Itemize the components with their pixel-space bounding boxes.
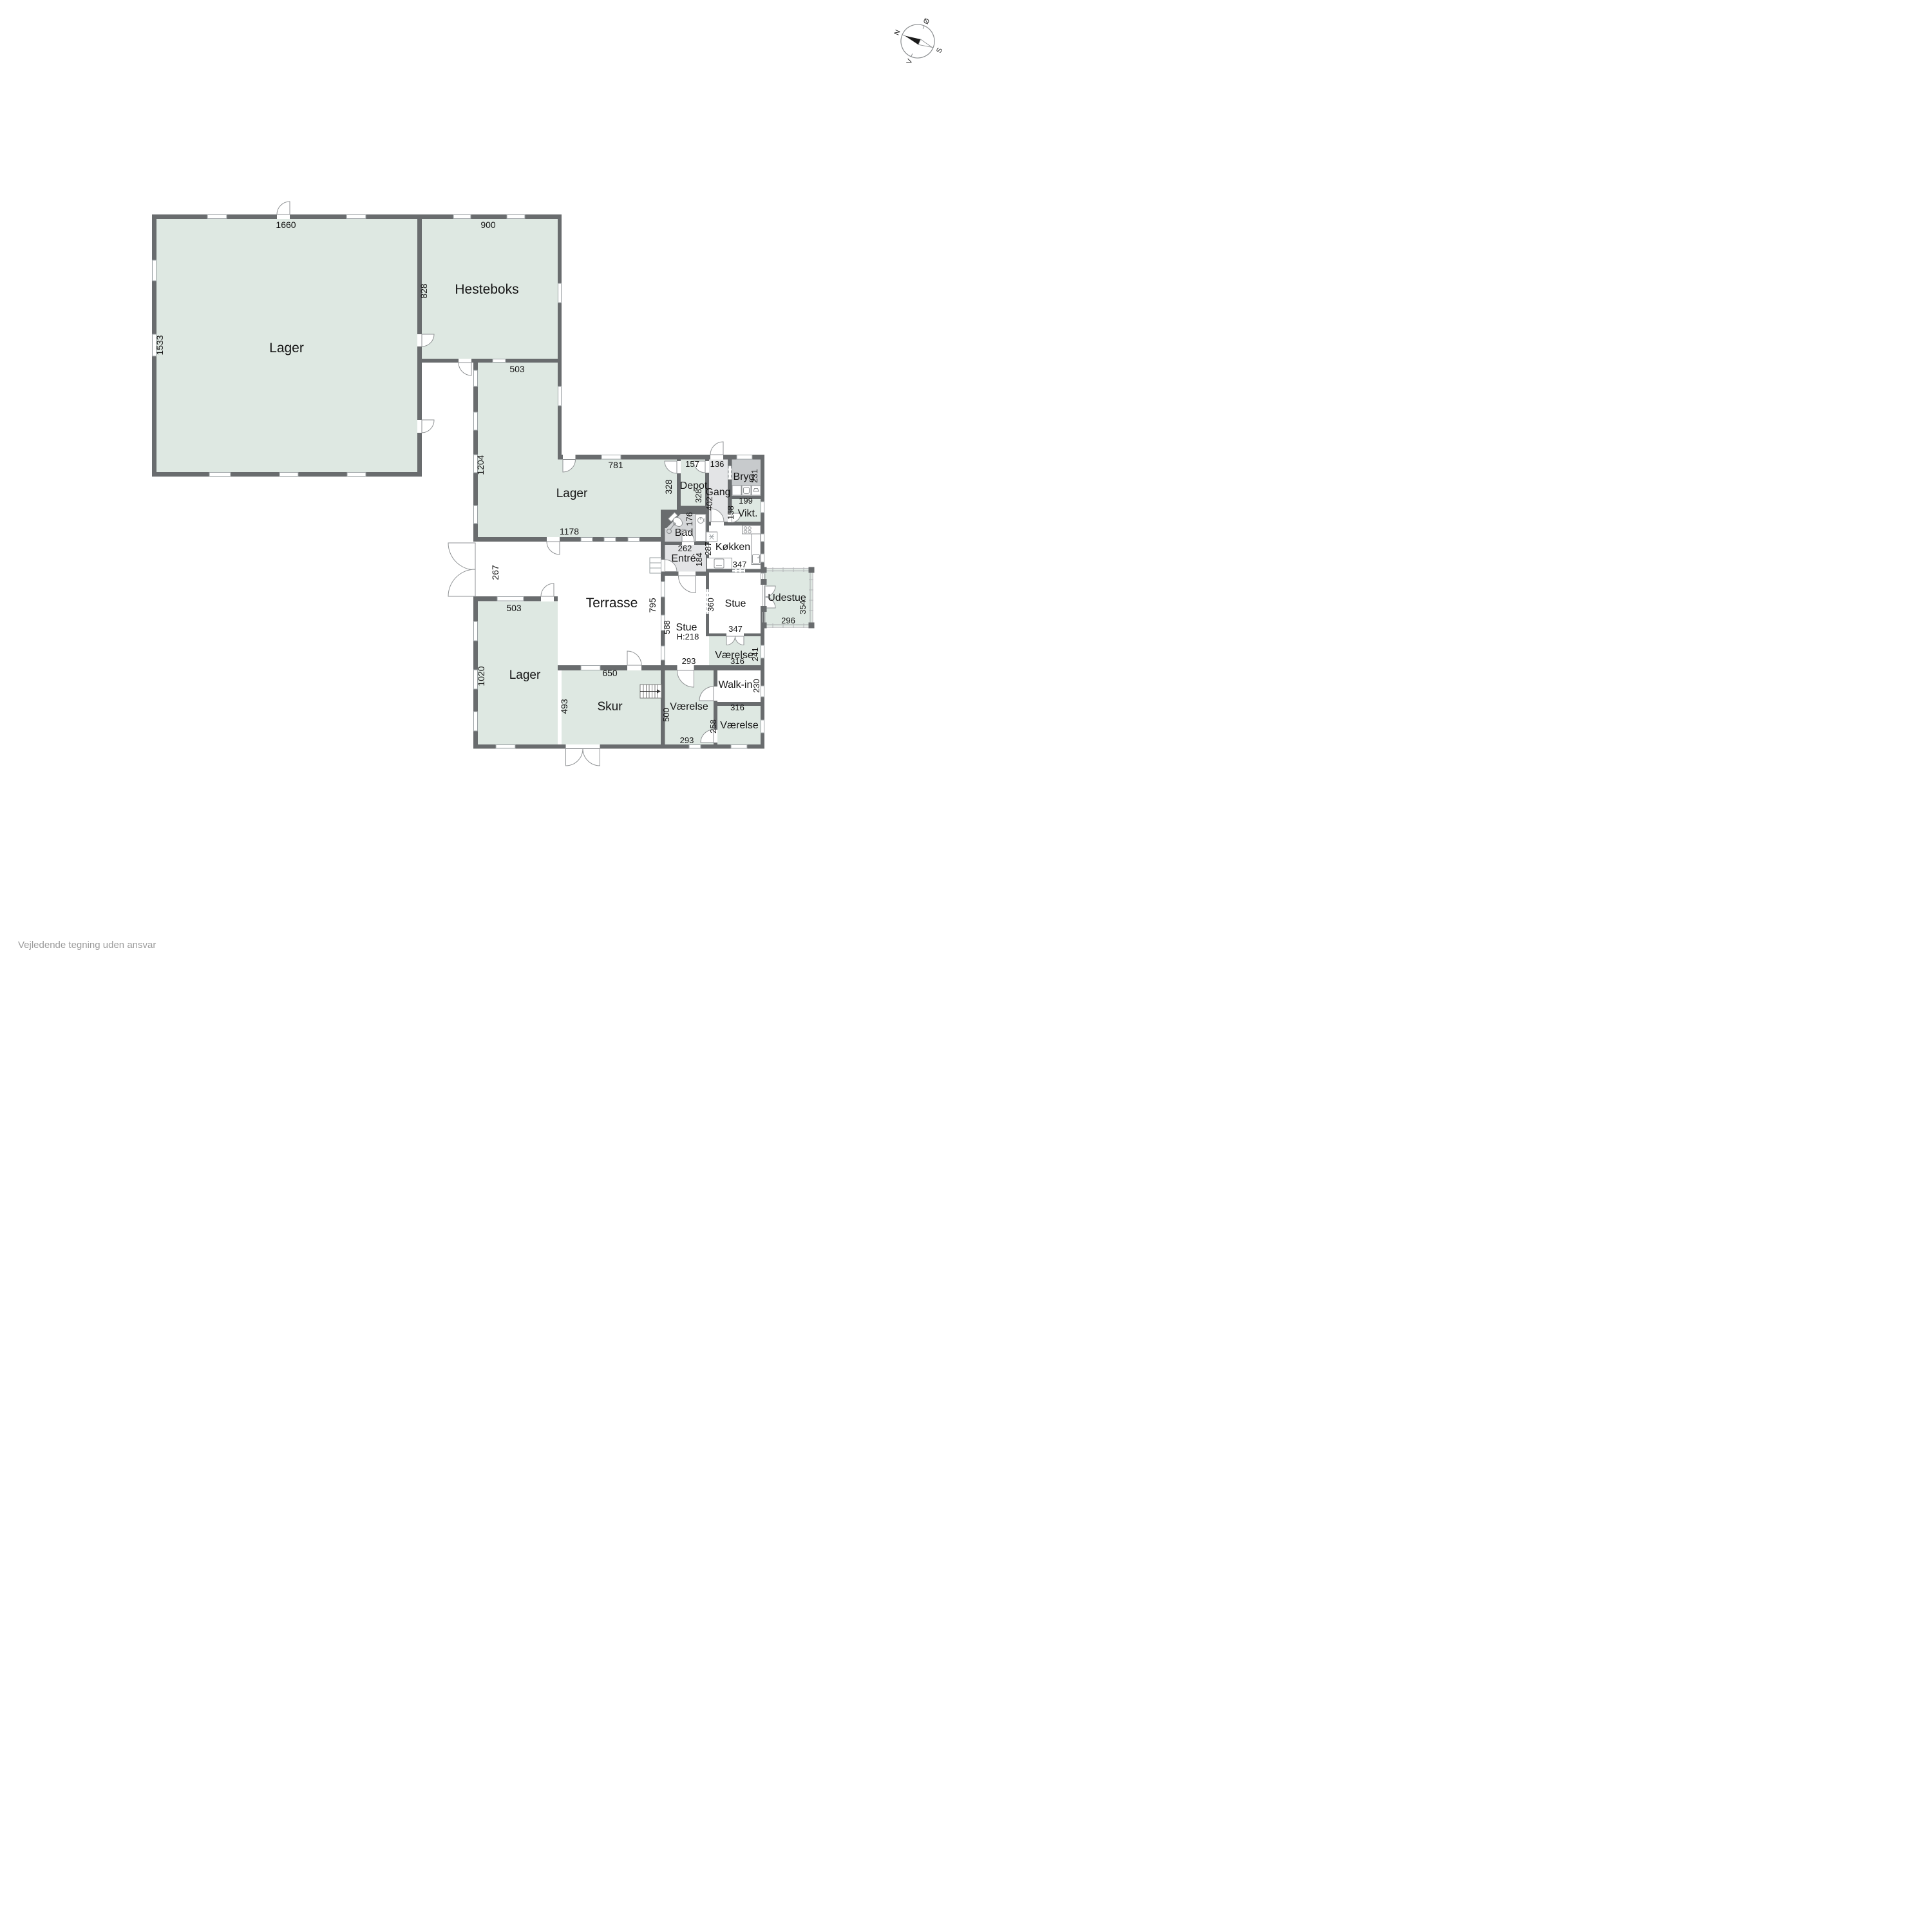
room-label-koekken: Køkken (715, 542, 750, 553)
compass-label-s: S (935, 47, 944, 54)
door-arc-barn-right (422, 420, 434, 433)
dim-176: 176 (685, 512, 694, 526)
room-label-vikt: Vikt. (738, 508, 758, 519)
room-label-entre: Entré (671, 553, 696, 564)
dim-199: 199 (739, 496, 753, 506)
dim-503-bottom: 503 (506, 603, 522, 613)
door-arc-skur-south-left (566, 749, 583, 766)
dim-795: 795 (647, 598, 658, 613)
dim-241: 241 (750, 647, 760, 661)
dim-347-koekken: 347 (733, 560, 747, 569)
dim-328-depot: 328 (694, 489, 703, 503)
dim-402: 402 (705, 497, 714, 511)
compass-label-n: N (893, 29, 902, 37)
entre-step-icon (650, 558, 661, 573)
room-label-bad: Bad (675, 527, 693, 538)
dim-1204: 1204 (475, 455, 486, 475)
room-label-stue-main-height: H:218 (677, 632, 699, 641)
dim-1533: 1533 (155, 335, 165, 355)
dim-347-stue: 347 (728, 624, 743, 634)
disclaimer-note: Vejledende tegning uden ansvar (18, 940, 156, 951)
dim-258: 258 (708, 719, 718, 734)
door-arc-lager-terrasse (547, 542, 560, 554)
room-label-vaerelse-bottom: Værelse (720, 720, 759, 731)
room-label-stue-right: Stue (725, 598, 746, 609)
koekken-stove-icon (743, 526, 761, 534)
dim-136: 136 (710, 459, 724, 469)
room-label-lager-mid: Lager (556, 487, 588, 500)
dim-781: 781 (608, 460, 623, 470)
room-label-terrasse: Terrasse (586, 596, 638, 611)
dim-267: 267 (490, 565, 500, 580)
dim-293-bottom: 293 (680, 735, 694, 745)
dim-1660: 1660 (276, 220, 296, 230)
floorplan-drawing: Lager 1660 1533 Hesteboks 900 828 503 12… (0, 0, 966, 966)
dim-184: 184 (694, 553, 704, 567)
door-arc-terrasse-west-top (448, 543, 475, 570)
dim-328-lager: 328 (663, 479, 674, 495)
compass-label-o: Ø (922, 17, 932, 25)
door-arc-skur-south-right (583, 749, 600, 766)
dim-360: 360 (706, 598, 715, 612)
koekken-fridge-icon (706, 532, 717, 542)
room-label-walkin: Walk-in (719, 679, 753, 690)
koekken-oven-icon (707, 558, 732, 569)
koekken-counter-right-icon (752, 534, 761, 565)
room-label-lager-big: Lager (269, 341, 304, 355)
dim-262: 262 (678, 544, 692, 553)
dim-354: 354 (798, 600, 808, 614)
room-label-vaerelse-mid: Værelse (670, 701, 708, 712)
room-label-hesteboks: Hesteboks (455, 282, 518, 297)
door-arc-skur-terrasse (627, 651, 641, 665)
dim-316-mid: 316 (730, 703, 744, 712)
door-arc-gang-exterior (710, 442, 723, 455)
dim-1020: 1020 (476, 666, 486, 686)
dim-316-top: 316 (730, 656, 744, 666)
room-lager-mid-floor (478, 363, 677, 537)
dim-231: 231 (750, 469, 759, 483)
door-arc-barn-top (277, 202, 290, 214)
compass-icon: N Ø S V (884, 8, 952, 75)
floorplan-page: Lager 1660 1533 Hesteboks 900 828 503 12… (0, 0, 966, 966)
door-arc-entre-stue (679, 576, 696, 593)
room-label-gang: Gang (705, 487, 730, 498)
skur-stairs-icon (640, 685, 661, 698)
dim-503-top: 503 (509, 364, 525, 374)
door-arc-terrasse-west-bottom (448, 569, 475, 596)
dim-296: 296 (781, 616, 795, 625)
dim-900: 900 (480, 220, 496, 230)
bryg-appliances-icon (732, 486, 761, 495)
dim-293-top: 293 (682, 656, 696, 666)
dim-650: 650 (602, 668, 618, 678)
dim-157: 157 (685, 459, 699, 469)
dim-1178: 1178 (560, 526, 579, 536)
dim-287: 287 (703, 542, 713, 556)
dim-828: 828 (419, 283, 429, 299)
bad-sink-icon (696, 515, 706, 542)
compass-label-v: V (905, 57, 914, 65)
room-label-skur: Skur (597, 700, 623, 714)
door-arc-hesteboks-bottom (459, 363, 471, 375)
door-arc-lagerbottom-terrasse (541, 583, 554, 596)
dim-158: 158 (726, 506, 735, 520)
room-label-lager-bottom: Lager (509, 668, 541, 682)
dim-493: 493 (559, 699, 569, 714)
dim-588: 588 (662, 620, 672, 634)
dim-500: 500 (661, 708, 671, 722)
dim-230: 230 (752, 679, 761, 693)
